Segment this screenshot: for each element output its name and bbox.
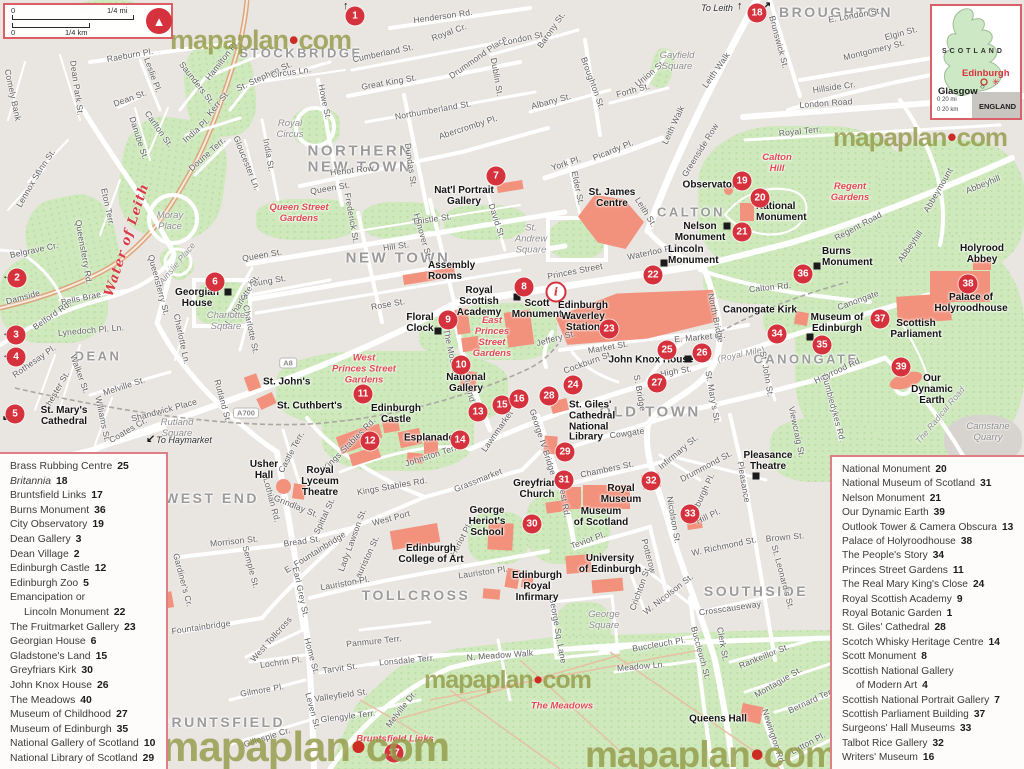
square-name-label: MorayPlace xyxy=(157,211,183,233)
direction-arrow-icon: ↑ xyxy=(737,1,743,12)
poi-label: St. Mary'sCathedral xyxy=(41,406,88,428)
building xyxy=(483,588,501,599)
watermark-tld: com xyxy=(299,25,352,55)
park-name-label: RegentGardens xyxy=(831,182,870,204)
district-label: CALTON xyxy=(657,205,725,220)
map-marker-13[interactable]: 13 xyxy=(469,403,488,422)
poi-label: RoyalMuseum xyxy=(601,484,642,506)
poi-label: Nat'l PortraitGallery xyxy=(434,186,494,208)
legend-item: Britannia18 xyxy=(10,475,166,490)
poi-label: GeorgeHeriot'sSchool xyxy=(469,506,506,538)
mi-ruler xyxy=(12,15,134,20)
poi-label: Esplanade xyxy=(404,434,454,445)
scale-mi-label: 1/4 mi xyxy=(107,6,127,15)
poi-square-icon xyxy=(724,223,731,230)
legend-item: Scottish National Portrait Gallery7 xyxy=(842,694,1024,708)
map-marker-36[interactable]: 36 xyxy=(794,265,813,284)
legend-item: Nelson Monument21 xyxy=(842,492,1024,506)
inset-edinburgh-star-icon: ✳ xyxy=(992,77,1000,88)
square-name-label: CamstaneQuarry xyxy=(966,422,1009,444)
map-marker-28[interactable]: 28 xyxy=(540,387,559,406)
legend-item: Museum of Childhood27 xyxy=(10,708,166,723)
inset-glasgow-label: Glasgow xyxy=(938,86,978,97)
map-marker-19[interactable]: 19 xyxy=(733,172,752,191)
watermark-name: mapaplan xyxy=(170,25,288,55)
legend-item: Surgeons' Hall Museums33 xyxy=(842,722,1024,736)
mapaplan-watermark: mapaplan•com xyxy=(162,726,449,768)
watermark-name: mapaplan xyxy=(585,734,750,769)
map-marker-21[interactable]: 21 xyxy=(733,223,752,242)
legend-item: Bruntsfield Links17 xyxy=(10,489,166,504)
legend-item: Dean Village2 xyxy=(10,548,166,563)
watermark-tld: com xyxy=(956,122,1006,152)
map-marker-7[interactable]: 7 xyxy=(487,167,506,186)
legend-item: Georgian House6 xyxy=(10,635,166,650)
legend-item: National Monument20 xyxy=(842,463,1024,477)
legend-item: Talbot Rice Gallery32 xyxy=(842,737,1024,751)
poi-label: PleasanceTheatre xyxy=(744,451,793,473)
poi-label: St. John's xyxy=(263,378,310,389)
poi-square-icon xyxy=(435,328,442,335)
inset-country-label: SCOTLAND xyxy=(942,48,1005,55)
mapaplan-watermark: mapaplan•com xyxy=(585,736,837,769)
scale-zero-mi: 0 xyxy=(11,6,15,15)
scale-zero-km: 0 xyxy=(11,28,15,37)
map-marker-6[interactable]: 6 xyxy=(206,273,225,292)
poi-label: OurDynamicEarth xyxy=(911,374,953,406)
park-name-label: WestPrinces StreetGardens xyxy=(332,354,396,387)
mapaplan-watermark: mapaplan•com xyxy=(424,668,591,693)
square-name-label: St.AndrewSquare xyxy=(515,224,547,257)
poi-square-icon xyxy=(685,356,692,363)
legend-item: Museum of Edinburgh35 xyxy=(10,723,166,738)
map-marker-18[interactable]: 18 xyxy=(748,4,767,23)
mapaplan-watermark: mapaplan•com xyxy=(170,27,351,54)
poi-square-icon xyxy=(753,473,760,480)
direction-arrow-icon: ↙ xyxy=(146,434,155,445)
legend-item: Scottish Parliament Building37 xyxy=(842,708,1024,722)
legend-item: Edinburgh Zoo5 xyxy=(10,577,166,592)
park-name-label: EastPrincesStreetGardens xyxy=(473,316,512,360)
legend-item: The Fruitmarket Gallery23 xyxy=(10,621,166,636)
legend-item: Outlook Tower & Camera Obscura13 xyxy=(842,521,1024,535)
poi-label: EdinburghCastle xyxy=(371,404,421,426)
poi-label: ScottishParliament xyxy=(890,319,941,341)
watermark-name: mapaplan xyxy=(424,666,533,694)
poi-label: RoyalLyceumTheatre xyxy=(301,466,338,498)
park-name-label: The Meadows xyxy=(531,702,593,713)
legend-item: Greyfriars Kirk30 xyxy=(10,664,166,679)
watermark-name: mapaplan xyxy=(833,122,946,152)
map-marker-31[interactable]: 31 xyxy=(555,471,574,490)
watermark-tld: com xyxy=(366,723,449,769)
park-name-label: Queen StreetGardens xyxy=(269,203,328,225)
watermark-dot-icon: • xyxy=(751,734,763,769)
map-marker-33[interactable]: 33 xyxy=(681,505,700,524)
legend-item: Princes Street Gardens11 xyxy=(842,564,1024,578)
map-marker-20[interactable]: 20 xyxy=(751,189,770,208)
legend-panel-right: National Monument20National Museum of Sc… xyxy=(830,455,1024,769)
north-compass-icon: ▲ xyxy=(146,8,172,34)
district-label: DEAN xyxy=(75,349,122,364)
district-label: NORTHERN xyxy=(308,143,413,160)
map-marker-35[interactable]: 35 xyxy=(813,336,832,355)
poi-label: Universityof Edinburgh xyxy=(579,554,641,576)
watermark-tld: com xyxy=(764,734,837,769)
legend-item: The Meadows40 xyxy=(10,694,166,709)
legend-item: Dean Gallery3 xyxy=(10,533,166,548)
scotland-inset-map: SCOTLAND Edinburgh ✳ Glasgow ○ ENGLAND 0… xyxy=(930,4,1022,120)
poi-label: LincolnMonument xyxy=(668,245,719,267)
legend-item: The Real Mary King's Close24 xyxy=(842,578,1024,592)
poi-square-icon xyxy=(225,289,232,296)
to-leith-label: To Leith xyxy=(701,3,733,13)
legend-item: Palace of Holyroodhouse38 xyxy=(842,535,1024,549)
poi-square-icon xyxy=(807,334,814,341)
district-label: TOLLCROSS xyxy=(362,587,471,603)
map-marker-27[interactable]: 27 xyxy=(648,374,667,393)
poi-label: FloralClock xyxy=(406,313,433,335)
legend-item: St. Giles' Cathedral28 xyxy=(842,621,1024,635)
map-marker-23[interactable]: 23 xyxy=(600,320,619,339)
poi-label: St. Giles'CathedralNationalLibrary xyxy=(569,400,615,443)
square-name-label: GayfieldSquare xyxy=(660,51,695,73)
map-marker-12[interactable]: 12 xyxy=(361,432,380,451)
legend-item: John Knox House26 xyxy=(10,679,166,694)
poi-label: GeorgianHouse xyxy=(175,288,219,310)
building xyxy=(591,578,623,594)
legend-panel-left: Brass Rubbing Centre25Britannia18Bruntsf… xyxy=(0,452,168,769)
legend-item: City Observatory19 xyxy=(10,518,166,533)
map-marker-14[interactable]: 14 xyxy=(451,431,470,450)
poi-label: Queens Hall xyxy=(689,715,747,726)
poi-label: EdinburghCollege of Art xyxy=(398,544,463,566)
map-marker-3[interactable]: 3 xyxy=(7,326,26,345)
watermark-dot-icon: • xyxy=(351,723,365,769)
legend-item: National Gallery of Scotland10 xyxy=(10,737,166,752)
poi-label: EdinburghRoyalInfirmary xyxy=(512,571,562,603)
legend-item: Scottish National Gallery xyxy=(842,665,1024,679)
scale-bar: 0 1/4 mi 0 1/4 km ▲ xyxy=(3,3,173,39)
legend-item: Our Dynamic Earth39 xyxy=(842,506,1024,520)
legend-item: of Modern Art4 xyxy=(842,679,1024,693)
map-marker-1[interactable]: 1 xyxy=(346,7,365,26)
edinburgh-tourist-map: 0 1/4 mi 0 1/4 km ▲ SCOTLAND Edinburgh ✳… xyxy=(0,0,1024,769)
watermark-dot-icon: • xyxy=(289,25,297,55)
scale-km-label: 1/4 km xyxy=(65,28,88,37)
inset-edinburgh-label: Edinburgh xyxy=(962,68,1010,79)
map-marker-34[interactable]: 34 xyxy=(768,325,787,344)
poi-label: Canongate Kirk xyxy=(723,306,797,317)
legend-item: Writers' Museum16 xyxy=(842,751,1024,765)
map-marker-37[interactable]: 37 xyxy=(871,310,890,329)
to-haymarket-label: To Haymarket xyxy=(156,435,212,445)
inset-england-label: ENGLAND xyxy=(979,102,1016,111)
map-marker-16[interactable]: 16 xyxy=(510,390,529,409)
map-marker-5[interactable]: 5 xyxy=(6,405,25,424)
legend-item: Edinburgh Castle12 xyxy=(10,562,166,577)
poi-label: Museumof Scotland xyxy=(574,507,628,529)
mapaplan-watermark: mapaplan•com xyxy=(833,124,1007,150)
district-label: WEST END xyxy=(165,490,259,506)
information-icon: i xyxy=(546,282,567,303)
road-badge-a8: A8 xyxy=(279,358,297,369)
poi-label: Museum ofEdinburgh xyxy=(811,313,864,335)
map-marker-30[interactable]: 30 xyxy=(523,515,542,534)
legend-item: National Library of Scotland29 xyxy=(10,752,166,767)
inset-glasgow-ring-icon: ○ xyxy=(980,82,985,91)
map-marker-11[interactable]: 11 xyxy=(354,385,373,404)
map-marker-2[interactable]: 2 xyxy=(8,269,27,288)
legend-item: The People's Story34 xyxy=(842,549,1024,563)
legend-item: National Museum of Scotland31 xyxy=(842,477,1024,491)
legend-item: Brass Rubbing Centre25 xyxy=(10,460,166,475)
legend-item: Lincoln Monument22 xyxy=(10,606,166,621)
map-marker-26[interactable]: 26 xyxy=(693,344,712,363)
poi-label: GreyfriarsChurch xyxy=(513,479,561,501)
poi-label: RoyalScottishAcademy xyxy=(457,286,501,318)
map-marker-38[interactable]: 38 xyxy=(959,275,978,294)
square-name-label: CharlotteSquare xyxy=(207,311,246,333)
usher-hall-building xyxy=(276,479,291,494)
watermark-tld: com xyxy=(542,666,590,694)
legend-item: Emancipation or xyxy=(10,591,166,606)
poi-square-icon xyxy=(814,263,821,270)
inset-scale-km: 0 20 km xyxy=(937,107,958,113)
map-marker-24[interactable]: 24 xyxy=(564,376,583,395)
map-marker-4[interactable]: 4 xyxy=(7,348,26,367)
watermark-name: mapaplan xyxy=(162,723,350,769)
poi-label: NationalGallery xyxy=(446,373,485,395)
poi-label: HolyroodAbbey xyxy=(960,244,1004,266)
poi-label: John Knox House xyxy=(608,356,693,367)
poi-label: NelsonMonument xyxy=(675,222,726,244)
poi-square-icon xyxy=(661,260,668,267)
legend-item: Scott Monument8 xyxy=(842,650,1024,664)
building xyxy=(740,203,754,221)
poi-label: AssemblyRooms xyxy=(428,261,475,283)
map-marker-9[interactable]: 9 xyxy=(439,311,458,330)
square-name-label: RoyalCircus xyxy=(277,119,304,141)
map-marker-32[interactable]: 32 xyxy=(642,472,661,491)
poi-label: Palace ofHolyroodhouse xyxy=(934,293,1007,315)
poi-label: BurnsMonument xyxy=(822,247,873,269)
park-name-label: CaltonHill xyxy=(762,153,792,175)
poi-label: UsherHall xyxy=(250,460,278,482)
map-marker-25[interactable]: 25 xyxy=(658,341,677,360)
map-marker-10[interactable]: 10 xyxy=(452,356,471,375)
legend-item: Royal Scottish Academy9 xyxy=(842,593,1024,607)
square-name-label: GeorgeSquare xyxy=(588,610,620,632)
map-marker-22[interactable]: 22 xyxy=(644,266,663,285)
map-marker-39[interactable]: 39 xyxy=(892,358,911,377)
legend-item: Gladstone's Land15 xyxy=(10,650,166,665)
watermark-dot-icon: • xyxy=(534,666,542,694)
watermark-dot-icon: • xyxy=(947,122,955,152)
legend-item: Scotch Whisky Heritage Centre14 xyxy=(842,636,1024,650)
legend-item: Burns Monument36 xyxy=(10,504,166,519)
map-marker-8[interactable]: 8 xyxy=(515,278,534,297)
road-badge-a700: A700 xyxy=(233,408,259,419)
inset-scale-mi: 0 20 mi xyxy=(937,97,957,103)
poi-label: St. JamesCentre xyxy=(589,188,636,210)
poi-label: St. Cuthbert's xyxy=(277,402,342,413)
legend-item: Royal Botanic Garden1 xyxy=(842,607,1024,621)
map-marker-29[interactable]: 29 xyxy=(556,443,575,462)
